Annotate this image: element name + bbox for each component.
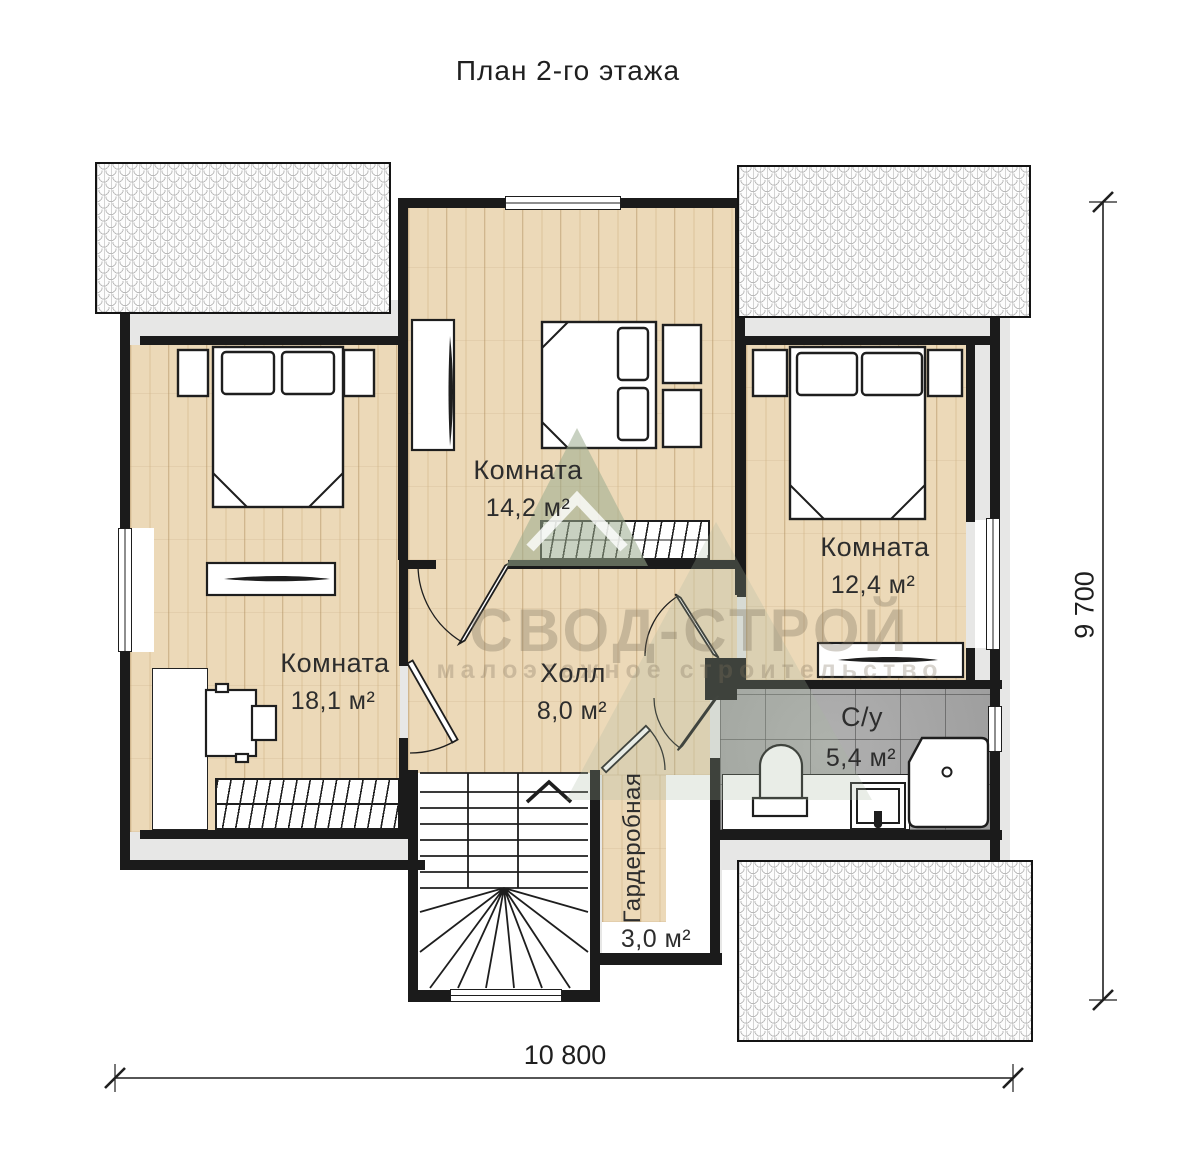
wall-segment — [140, 336, 408, 345]
wardrobe-area: 3,0 м² — [621, 925, 691, 954]
room-14-name: Комната — [473, 455, 582, 486]
wall-segment — [120, 860, 425, 870]
roof-hatch-bottom-right — [737, 860, 1033, 1042]
bathroom-area: 5,4 м² — [826, 744, 896, 773]
page-title: План 2-го этажа — [456, 55, 680, 87]
room-14-2-floor — [408, 208, 735, 560]
window — [505, 196, 621, 210]
wardrobe-name: Гардеробная — [619, 773, 647, 924]
wall-segment — [737, 345, 746, 597]
wall-segment — [399, 738, 408, 839]
window — [450, 989, 562, 1002]
wall-segment — [990, 650, 1000, 706]
roof-hatch-top-left — [95, 162, 391, 314]
window — [986, 518, 1000, 650]
wall-segment — [737, 336, 1000, 345]
floor-plan-canvas: План 2-го этажа — [0, 0, 1200, 1157]
wall-segment — [120, 300, 130, 528]
wall-segment — [408, 560, 436, 569]
wall-segment — [710, 758, 720, 965]
wardrobe-shelf-area — [666, 775, 710, 922]
closet-hatch-room-14 — [540, 520, 710, 560]
room-12-area: 12,4 м² — [831, 571, 916, 600]
wall-segment — [966, 336, 975, 522]
bathroom-counter — [722, 774, 910, 830]
dimension-height-label: 9 700 — [1070, 571, 1101, 639]
room-12-name: Комната — [820, 532, 929, 563]
watermark-brand: СВОД-СТРОЙ — [415, 596, 965, 665]
roof-hatch-top-right — [737, 165, 1031, 318]
wall-segment — [990, 300, 1000, 518]
dimension-width-label: 10 800 — [524, 1040, 607, 1071]
wall-segment — [990, 752, 1000, 870]
room-18-name: Комната — [280, 648, 389, 679]
hall-area: 8,0 м² — [537, 697, 607, 726]
hall-name: Холл — [540, 658, 606, 689]
staircase-area — [418, 773, 590, 990]
wall-segment — [966, 648, 975, 680]
window-recess-left — [130, 528, 154, 652]
wall-segment — [120, 652, 130, 870]
room-14-area: 14,2 м² — [486, 494, 571, 523]
wall-segment — [508, 560, 745, 569]
room-18-area: 18,1 м² — [291, 687, 376, 716]
wall-segment — [140, 830, 408, 839]
wall-segment — [590, 770, 600, 1002]
window — [118, 528, 132, 652]
wall-segment — [600, 953, 722, 965]
wall-segment — [408, 770, 418, 1002]
wall-segment — [399, 336, 408, 666]
builtin-closet — [152, 668, 208, 830]
window — [988, 706, 1002, 752]
watermark-tagline: малоэтажное строительство — [430, 656, 950, 685]
bathroom-name: С/у — [841, 702, 883, 733]
wall-segment — [710, 830, 1002, 840]
hall-floor-lower — [408, 680, 710, 775]
closet-hatch-room-18 — [215, 778, 400, 830]
